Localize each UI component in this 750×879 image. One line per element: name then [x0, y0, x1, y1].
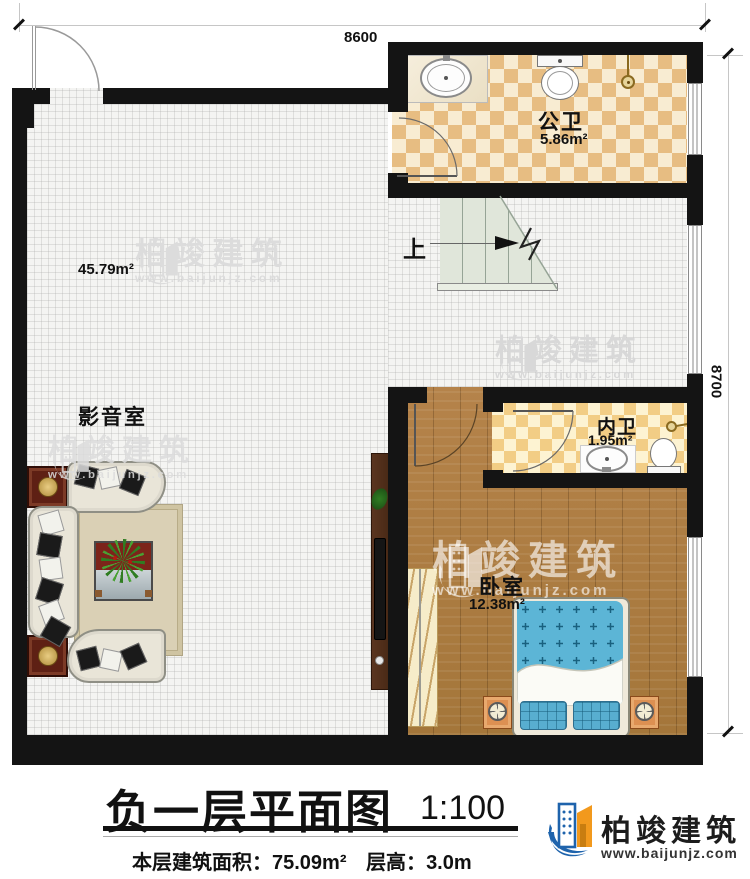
toilet-bowl-inner-icon: [547, 71, 573, 95]
floor-height-label: 层高：: [366, 852, 426, 874]
bedroom-area-label: 12.38m²: [469, 596, 525, 613]
side-table-ornament-icon: [38, 646, 58, 666]
dim-line-top: [19, 25, 706, 26]
bed-pillow: [573, 701, 620, 730]
plant-icon: [101, 539, 145, 583]
inner-toilet-bowl-icon: [650, 438, 677, 469]
dim-ext-line: [19, 3, 20, 32]
entry-door-leaf: [32, 25, 36, 90]
dim-line-right: [728, 55, 729, 733]
faucet-icon: [443, 55, 450, 61]
plan-scale: 1:100: [420, 789, 505, 828]
media-room-label: 影音室: [78, 401, 147, 431]
title-rule-thick: [103, 826, 518, 831]
floor-area-label: 本层建筑面积：: [132, 852, 272, 874]
lamp-icon: [488, 702, 507, 721]
wall: [483, 387, 703, 403]
logo-icon: [542, 798, 598, 860]
table-foot-icon: [145, 590, 152, 597]
stair-hall-floor: [388, 198, 687, 387]
wall: [483, 473, 687, 488]
tv-icon: [374, 538, 386, 640]
side-table-ornament-icon: [38, 477, 58, 497]
stair-up-label: 上: [403, 230, 426, 264]
wall: [687, 42, 703, 83]
wall: [408, 387, 427, 403]
shower-dot-icon: [627, 81, 630, 84]
plan-title: 负一层平面图: [105, 776, 393, 842]
public-bath-area-label: 5.86m²: [540, 131, 588, 148]
sofa-pillow: [36, 532, 63, 559]
wall: [687, 677, 703, 765]
staircase-base: [437, 283, 558, 291]
stair-arrow-line: [430, 243, 498, 244]
sink-drain-icon: [444, 76, 448, 80]
bed-pillow: [520, 701, 567, 730]
window: [688, 537, 702, 677]
plant-berry-icon: [113, 556, 117, 560]
wall: [483, 387, 503, 412]
plant-berry-icon: [128, 560, 132, 564]
logo-brand-url: www.baijunjz.com: [601, 845, 738, 861]
floor-height-value: 3.0m: [426, 852, 472, 874]
window: [688, 83, 702, 155]
wall: [388, 387, 408, 735]
wall: [388, 183, 703, 198]
stair-arrow-icon: [495, 236, 519, 250]
media-room-area-label: 45.79m²: [78, 261, 134, 278]
inner-sink-drain-icon: [605, 457, 609, 461]
floor-plan-page: 上: [0, 0, 750, 879]
sofa-pillow: [97, 466, 121, 490]
floor-area-value: 75.09m²: [272, 852, 347, 874]
shower-hose-icon: [627, 55, 629, 77]
wall: [103, 88, 395, 104]
floor-stats: 本层建筑面积：75.09m² 层高：3.0m: [132, 846, 472, 875]
logo-brand-name: 柏竣建筑: [601, 806, 741, 850]
dim-top-value: 8600: [344, 29, 377, 46]
wall: [27, 104, 34, 128]
lamp-icon: [635, 702, 654, 721]
dim-ext-line: [705, 3, 706, 32]
wall: [388, 42, 408, 112]
table-foot-icon: [95, 590, 102, 597]
wall: [12, 735, 703, 765]
inner-faucet-icon: [602, 467, 611, 472]
cabinet-dish-icon: [375, 656, 384, 665]
inner-bath-area-label: 1.95m²: [588, 432, 632, 448]
wall: [687, 155, 703, 225]
title-rule-thin: [103, 836, 518, 837]
wall: [388, 42, 703, 55]
window: [688, 225, 702, 374]
entry-door-arc: [35, 27, 99, 91]
dim-right-value: 8700: [708, 352, 725, 412]
bed-mattress: [517, 601, 623, 706]
wall: [12, 88, 27, 765]
toilet-button-icon: [558, 59, 562, 63]
